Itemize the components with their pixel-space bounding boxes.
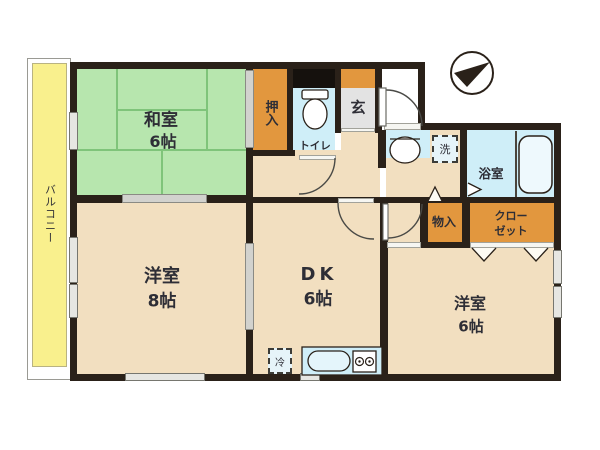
toilet-label: トイレ [299,141,331,152]
genkan-label: 玄 [350,101,365,116]
storage-door-mark [428,187,442,201]
dk-size: 6帖 [304,292,333,309]
bifold-door-mark [472,248,496,261]
yoshitsu8-label: 洋室 [144,268,180,286]
yoshitsu8-size: 8帖 [148,294,177,311]
closet-label-line2: ゼット [495,226,528,237]
closet-label-line1: クロー [495,211,528,222]
stove-icon [353,351,376,372]
bifold-door-mark [524,248,548,261]
entry-door-leaf [379,88,386,126]
washitsu-label: 和室 [144,113,178,130]
toilet-bowl-icon [303,99,327,129]
bathroom-label: 浴室 [478,168,503,181]
toilet-door-swing [299,158,335,194]
stove-burner-dot [368,360,370,362]
dk-door-swing [338,203,374,239]
oshiire-label: 押入 [264,100,277,126]
washer-space: 洗 [432,135,458,163]
fridge-space: 冷 [268,348,292,374]
bath-door-mark [468,183,481,196]
entry-door-swing [386,90,422,126]
washbasin-icon [390,137,420,163]
kitchen-sink-icon [308,351,350,371]
stove-burner-dot [358,360,360,362]
toilet-tank-icon [302,90,328,99]
washer-label: 洗 [440,141,451,157]
bedroom-door-swing [388,204,422,238]
floorplan: バルコニー [0,0,600,450]
monoire-label: 物入 [432,216,456,228]
bedroom-door-leaf [383,204,388,240]
washitsu-size: 6帖 [149,134,176,150]
yoshitsu6-size: 6帖 [458,320,483,335]
fridge-label: 冷 [275,354,285,369]
bathtub-icon [519,136,552,193]
yoshitsu6-label: 洋室 [454,296,486,312]
dk-label: DK [301,266,338,284]
